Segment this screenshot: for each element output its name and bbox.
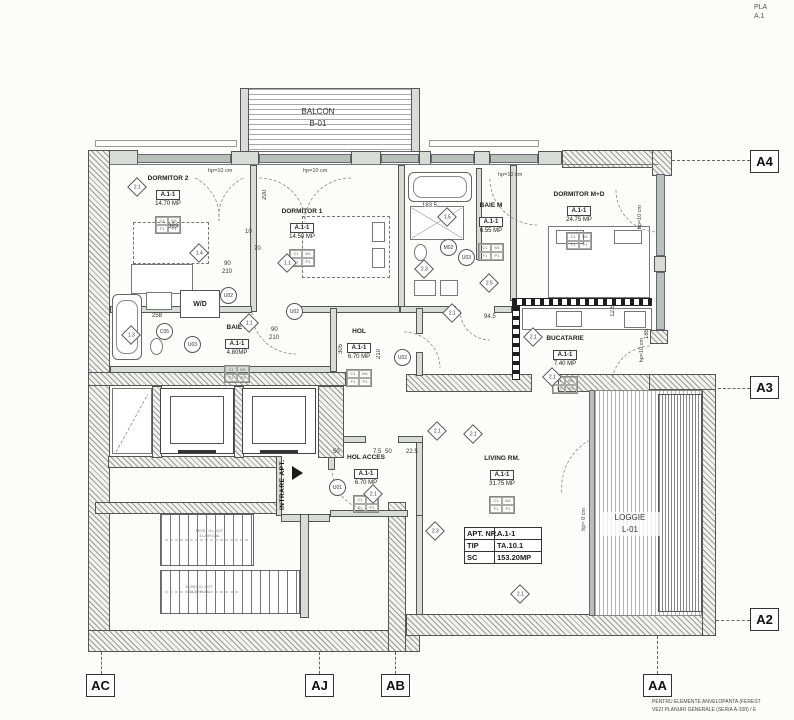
type-marker-label: 2.1 bbox=[449, 310, 456, 316]
grid-marker-label: A2 bbox=[756, 612, 773, 627]
type-marker-label: 2.1 bbox=[549, 374, 556, 380]
room-name: BUCATARIE bbox=[534, 335, 596, 343]
finish-code: F1 bbox=[553, 385, 565, 393]
apt-info-row: APT. NR.A.1-1 bbox=[465, 528, 541, 540]
finish-code: P1 bbox=[491, 252, 503, 260]
dimension-label: 210 bbox=[269, 335, 279, 341]
finish-code: P1 bbox=[579, 241, 591, 249]
grid-marker-label: A4 bbox=[756, 154, 773, 169]
type-marker-label: 2.1 bbox=[434, 428, 441, 434]
door-tag: U02 bbox=[394, 349, 411, 366]
grid-marker-aj: AJ bbox=[305, 674, 334, 697]
type-marker-label: 1.5 bbox=[444, 214, 451, 220]
room-unit: A.1-1 bbox=[225, 339, 250, 349]
door-tag-label: U02 bbox=[224, 293, 233, 299]
door-tag-label: U02 bbox=[398, 355, 407, 361]
finish-code: P1 bbox=[366, 504, 378, 512]
finish-code: C1 bbox=[479, 244, 491, 252]
apt-info-row: TIPTA.10.1 bbox=[465, 540, 541, 552]
corner-note-line: A.1 bbox=[754, 12, 767, 21]
room-unit: A.1-1 bbox=[553, 350, 578, 360]
finish-code: F1 bbox=[479, 252, 491, 260]
dimension-label: 10 bbox=[245, 229, 252, 235]
finish-code: C1 bbox=[354, 496, 366, 504]
finish-code-table: C1W1F1P1 bbox=[478, 243, 504, 261]
room-area: 6.55 MP bbox=[460, 228, 522, 236]
finish-code: W1 bbox=[302, 250, 314, 258]
type-marker-label: 2.1 bbox=[517, 591, 524, 597]
finish-code-table: C1W1F1P1 bbox=[489, 496, 515, 514]
grid-line bbox=[319, 652, 320, 674]
apt-info-value: A.1-1 bbox=[495, 528, 541, 539]
grid-line bbox=[716, 620, 750, 621]
sill-height-label: hp= 0 cm bbox=[582, 508, 588, 531]
type-marker-label: 2.1 bbox=[530, 334, 537, 340]
grid-marker-a2: A2 bbox=[750, 608, 779, 631]
door-tag: U02 bbox=[286, 303, 303, 320]
dimension-label: 305 bbox=[338, 344, 344, 354]
dimension-label: 183.5 bbox=[422, 203, 437, 209]
grid-marker-label: AC bbox=[91, 678, 110, 693]
footer-note-line: PENTRU ELEMENTE ANVELOPANTA (FEREST bbox=[652, 699, 794, 707]
entrance-label: INTRARE APT. bbox=[279, 438, 286, 510]
dimension-label: 50 bbox=[385, 449, 392, 455]
room-name: HOL ACCES bbox=[334, 454, 398, 462]
finish-code: P1 bbox=[359, 378, 371, 386]
finish-code: F1 bbox=[225, 374, 237, 382]
dimension-label: 90 bbox=[224, 261, 231, 267]
room-area: 31.75 MP bbox=[470, 481, 534, 489]
grid-marker-ac: AC bbox=[86, 674, 115, 697]
finish-code: P1 bbox=[237, 374, 249, 382]
room-label-baie-1: BAIE 1 A.1-1 4.80MP C1W1F1P1 bbox=[206, 324, 268, 383]
door-tag: U02 bbox=[220, 287, 237, 304]
sill-height-label: hp=10 cm bbox=[498, 173, 522, 179]
door-tag-label: U01 bbox=[333, 485, 342, 491]
finish-code: C1 bbox=[225, 366, 237, 374]
sill-height-label: hp=10 cm bbox=[208, 169, 232, 175]
dimension-label: 90 bbox=[271, 327, 278, 333]
corner-note-line: PLA bbox=[754, 3, 767, 12]
finish-code-table: C1W1F1P1 bbox=[224, 365, 250, 383]
finish-code: W1 bbox=[502, 497, 514, 505]
room-area: 14.50 MP bbox=[268, 234, 336, 242]
entrance-arrow-icon bbox=[292, 466, 303, 480]
room-unit: A.1-1 bbox=[156, 190, 181, 200]
grid-line bbox=[101, 652, 102, 674]
footer-note-line: VEZI PLANURI GENERALE (SERIA A-100) / E bbox=[652, 707, 794, 715]
room-name: BAIE 1 bbox=[206, 324, 268, 332]
grid-line bbox=[718, 388, 750, 389]
finish-code: W1 bbox=[491, 244, 503, 252]
finish-code: W1 bbox=[565, 377, 577, 385]
door-tag-label: U03 bbox=[462, 255, 471, 261]
sill-height-label: hp=10 cm bbox=[640, 338, 646, 362]
type-marker-label: 2.5 bbox=[486, 280, 493, 286]
room-label-dormitor-1: DORMITOR 1 A.1-1 14.50 MP C1W1F1P1 bbox=[268, 208, 336, 267]
door-tag: U03 bbox=[184, 336, 201, 353]
dimension-label: 200 bbox=[262, 190, 268, 200]
dimension-label: 210 bbox=[376, 349, 382, 359]
room-area: 24.75 MP bbox=[544, 217, 614, 225]
finish-code: C1 bbox=[290, 250, 302, 258]
equipment-tag: M02 bbox=[440, 239, 457, 256]
grid-marker-a4: A4 bbox=[750, 150, 779, 173]
equipment-tag: C05 bbox=[156, 323, 173, 340]
sill-height-label: hp=10 cm bbox=[303, 169, 327, 175]
room-unit: A.1-1 bbox=[347, 343, 372, 353]
grid-marker-ab: AB bbox=[381, 674, 410, 697]
dimension-label: 70 bbox=[254, 246, 261, 252]
room-label-bucatarie: BUCATARIE A.1-1 7.40 MP C1W1F1P1 bbox=[534, 335, 596, 394]
dimension-label: 12.5 bbox=[610, 305, 616, 317]
apartment-info-box: APT. NR.A.1-1 TIPTA.10.1 SC153.20MP bbox=[464, 527, 542, 564]
type-marker-label: 1.1 bbox=[246, 320, 253, 326]
floor-plan-canvas: BALCON B-01 LOGGIE L-01 bbox=[0, 0, 794, 720]
grid-line bbox=[672, 160, 750, 161]
room-area: 7.40 MP bbox=[534, 361, 596, 369]
dimension-label: 50 bbox=[333, 449, 340, 455]
grid-line bbox=[395, 652, 396, 674]
room-name: HOL bbox=[328, 328, 390, 336]
sheet-corner-note: PLA A.1 bbox=[754, 3, 767, 22]
type-marker-label: 2.1 bbox=[470, 431, 477, 437]
room-name: LIVING RM. bbox=[470, 455, 534, 463]
grid-line bbox=[657, 636, 658, 674]
grid-marker-aa: AA bbox=[643, 674, 672, 697]
room-unit: A.1-1 bbox=[354, 469, 379, 479]
grid-marker-label: A3 bbox=[756, 380, 773, 395]
finish-code-table: C1W1F1P1 bbox=[566, 232, 592, 250]
finish-code: W1 bbox=[579, 233, 591, 241]
room-name: BAIE M bbox=[460, 202, 522, 210]
finish-code: W1 bbox=[237, 366, 249, 374]
sill-height-label: hp=10 cm bbox=[638, 205, 644, 229]
room-name: DORMITOR 1 bbox=[268, 208, 336, 216]
room-name: DORMITOR 2 bbox=[136, 175, 200, 183]
finish-code: C1 bbox=[490, 497, 502, 505]
apt-info-row: SC153.20MP bbox=[465, 552, 541, 563]
apt-info-key: TIP bbox=[465, 540, 495, 551]
equipment-tag-label: M02 bbox=[444, 245, 454, 251]
door-tag: U01 bbox=[329, 479, 346, 496]
room-unit: A.1-1 bbox=[290, 223, 315, 233]
finish-code: P1 bbox=[502, 505, 514, 513]
finish-code: F1 bbox=[354, 504, 366, 512]
finish-code: W1 bbox=[359, 370, 371, 378]
type-marker-label: 1.4 bbox=[196, 250, 203, 256]
apt-info-value: TA.10.1 bbox=[495, 540, 541, 551]
type-marker-label: 1.1 bbox=[284, 260, 291, 266]
type-marker-label: 2.3 bbox=[421, 266, 428, 272]
dimension-label: 258 bbox=[152, 313, 162, 319]
finish-code: F1 bbox=[567, 241, 579, 249]
type-marker-label: 2.1 bbox=[370, 491, 377, 497]
room-label-dormitor-md: DORMITOR M+D A.1-1 24.75 MP C1W1F1P1 bbox=[544, 191, 614, 250]
finish-code-table: C1W1F1P1 bbox=[346, 369, 372, 387]
door-tag: U03 bbox=[458, 249, 475, 266]
finish-code: F1 bbox=[347, 378, 359, 386]
dimension-label: 383 bbox=[168, 224, 178, 230]
finish-code: F1 bbox=[156, 225, 168, 233]
dimension-label: 94.5 bbox=[484, 314, 496, 320]
room-area: 14.70 MP bbox=[136, 201, 200, 209]
door-tag-label: U03 bbox=[188, 342, 197, 348]
finish-code: F1 bbox=[490, 505, 502, 513]
grid-marker-label: AJ bbox=[311, 678, 328, 693]
room-label-living: LIVING RM. A.1-1 31.75 MP C1W1F1P1 bbox=[470, 455, 534, 514]
apt-info-key: SC bbox=[465, 552, 495, 563]
type-marker-label: 1.3 bbox=[128, 332, 135, 338]
room-unit: A.1-1 bbox=[479, 217, 504, 227]
dimension-label: 22.5 bbox=[406, 449, 418, 455]
equipment-tag-label: C05 bbox=[160, 329, 169, 335]
door-tag-label: U02 bbox=[290, 309, 299, 315]
room-area: 4.80MP bbox=[206, 350, 268, 358]
dimension-label: 210 bbox=[222, 269, 232, 275]
finish-code: P1 bbox=[302, 258, 314, 266]
grid-marker-a3: A3 bbox=[750, 376, 779, 399]
dimension-label: 7.5 bbox=[373, 449, 381, 455]
finish-code: C1 bbox=[347, 370, 359, 378]
finish-code: C1 bbox=[567, 233, 579, 241]
room-name: DORMITOR M+D bbox=[544, 191, 614, 199]
type-marker-label: 2.1 bbox=[134, 184, 141, 190]
grid-marker-label: AA bbox=[648, 678, 667, 693]
apt-info-key: APT. NR. bbox=[465, 528, 495, 539]
finish-code: C1 bbox=[156, 217, 168, 225]
apt-info-value: 153.20MP bbox=[495, 552, 541, 563]
footer-note: PENTRU ELEMENTE ANVELOPANTA (FEREST VEZI… bbox=[652, 699, 794, 714]
room-unit: A.1-1 bbox=[490, 470, 515, 480]
room-unit: A.1-1 bbox=[567, 206, 592, 216]
finish-code: P1 bbox=[565, 385, 577, 393]
grid-marker-label: AB bbox=[386, 678, 405, 693]
type-marker-label: 2.3 bbox=[432, 528, 439, 534]
